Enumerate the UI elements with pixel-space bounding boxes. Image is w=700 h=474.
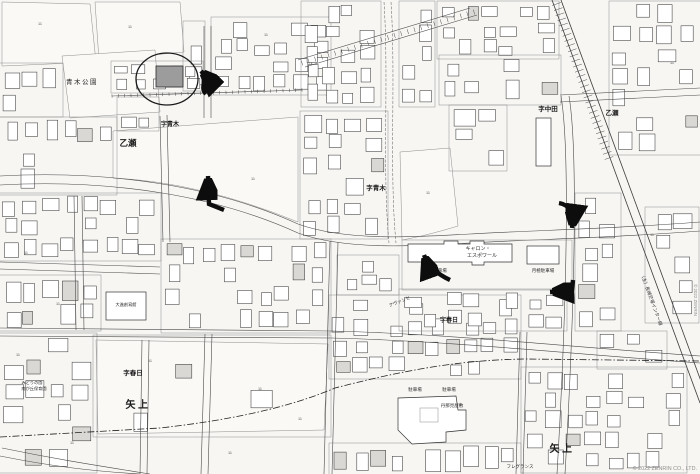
road-tick [565,39,574,42]
building [73,427,91,441]
building [51,385,63,397]
building [184,247,194,263]
building [483,323,496,334]
route-arrow-1 [201,71,206,94]
lot-number: 11 [38,22,42,26]
building [275,43,287,54]
building [657,26,672,44]
building [5,243,19,258]
building [326,26,339,36]
building [334,452,346,469]
building [360,87,374,102]
lot-number: 11 [251,177,255,181]
building [251,390,272,408]
building [305,137,317,148]
building [500,27,516,37]
building [347,280,356,290]
building [24,283,35,302]
road-edge [0,262,160,267]
building [3,407,23,423]
building [583,264,598,282]
area-label: 字青木 [366,183,386,192]
building [274,312,288,327]
building [587,396,601,407]
building [569,415,583,428]
building [586,411,598,425]
building [47,120,58,140]
building [329,6,340,23]
area-label: 矢上 [126,398,151,411]
building [679,281,692,293]
building [619,132,632,149]
building [343,93,353,103]
building [361,45,375,59]
building [612,53,625,65]
building [426,342,439,355]
building [22,201,36,214]
building-label: みどりの園 [22,379,43,386]
building [613,69,628,84]
building [189,314,200,328]
building [504,338,517,352]
building [221,245,235,261]
building [254,76,265,91]
building [61,305,76,325]
building [139,118,149,127]
building [274,75,285,87]
building [686,116,698,127]
building [426,450,441,472]
road-edge [560,88,700,95]
building-label: 丹那見屋敷 [441,402,464,409]
building [529,372,540,383]
road-tick [334,51,335,56]
building [360,30,374,43]
building [447,340,460,354]
road-tick [394,33,395,38]
building [72,385,88,400]
field-parcel [96,340,328,434]
road-tick [387,35,388,40]
building [421,10,431,23]
building [203,248,215,261]
building [445,81,455,96]
building [392,456,402,471]
building [167,244,182,255]
building [442,8,454,17]
building [346,178,363,195]
building [672,374,684,388]
stream-edge [391,2,396,243]
road-tick [575,69,584,72]
building [224,268,235,282]
road-tick [568,49,577,52]
building [304,158,317,174]
building [542,82,558,94]
building [658,215,671,230]
building [353,357,367,372]
building [463,294,479,307]
building [239,76,250,88]
building [527,434,542,448]
building [42,244,58,257]
building [658,50,676,62]
road-tick [401,31,402,36]
building [613,26,630,40]
building [363,262,374,273]
building [637,118,653,131]
building [448,292,462,304]
road-edge [332,242,338,474]
building [608,416,621,427]
building [408,342,423,354]
building [354,319,368,335]
building [673,214,692,229]
road-edge [0,269,160,274]
building [425,314,436,327]
road-tick [407,29,409,34]
area-label: 字春日 [440,316,458,324]
building [25,123,37,136]
building [460,40,471,55]
building [122,239,138,253]
area-label: 字春日 [123,368,143,377]
building [22,72,37,86]
building [341,50,355,62]
parcel-block [439,55,561,105]
building [85,218,96,229]
building [7,313,21,328]
building [114,66,127,73]
monthly-parking-building [527,246,559,264]
building [345,204,361,215]
building [3,95,15,111]
building [216,57,232,70]
road-tick [440,19,441,24]
building [191,46,201,64]
building [292,246,306,261]
building [658,5,672,23]
building [600,334,614,347]
area-label: 乙瀬 [606,108,620,117]
building [366,138,382,151]
lot-number: 11 [426,191,430,195]
building [84,286,96,299]
building [66,121,77,137]
building-label: キャロン・ [465,246,490,252]
building [83,240,98,252]
building [43,281,59,298]
route-arrow-4 [550,280,573,292]
building [341,5,352,15]
building [638,68,650,86]
map-viewport[interactable]: 青木公園字青木乙瀬字青木字中田乙瀬字春日矢上字春日矢上キャロン・エスポワール駐車… [0,0,700,474]
lot-number: 11 [264,33,268,37]
building [4,366,23,380]
building [169,265,180,282]
road-edge [516,332,520,474]
road-edge [2,448,150,474]
building [520,8,532,17]
building [122,117,137,128]
building [117,79,127,89]
building [637,4,650,17]
building [468,313,481,326]
road-tick [566,44,575,47]
building [681,26,693,42]
road-tick [328,53,329,58]
building [43,69,56,88]
building [23,154,34,166]
building [255,46,270,56]
building [640,28,653,42]
building [185,67,195,77]
road-edge [0,456,140,474]
copyright-text: © 2022 ZENRIN CO., LTD. [633,465,697,472]
building [465,81,479,92]
building [362,275,377,284]
building [371,450,386,466]
building [451,365,462,376]
building [393,341,403,354]
building [22,221,37,235]
building [5,73,20,88]
building [357,453,368,471]
edge-copyright-text: © 2022 ZENRIN [693,284,698,316]
destination-building [156,66,183,87]
building [545,411,561,428]
building-label: フレグランス [507,463,534,470]
building [139,200,154,215]
building [176,364,192,378]
building [479,109,496,121]
road-name-label: （主）長崎芒塚インター線 [639,272,665,327]
building [586,198,596,214]
building [305,26,317,43]
road-tick [447,17,448,22]
building [78,129,93,142]
building [308,84,318,100]
lot-number: 11 [650,233,654,237]
route-arrow-5 [559,203,572,228]
building [326,119,337,133]
building [403,66,415,79]
building [607,391,622,403]
building [609,374,623,389]
road-tick [580,85,589,88]
lot-number: 11 [228,451,232,455]
area-label: 字中田 [538,104,558,113]
building [23,311,33,324]
building [609,458,623,469]
building [165,289,179,304]
building [627,335,639,345]
building [646,452,659,468]
building [648,434,662,449]
building-label: 南が丘保育園 [21,385,46,392]
building [506,293,517,308]
road-tick [414,27,415,32]
building [214,76,228,86]
building [72,362,91,380]
building [68,196,78,212]
road-tick [573,64,582,67]
building-label: エスポワール [467,252,497,259]
road-tick [579,80,588,83]
road-edge [0,328,332,331]
road-edge [0,336,332,338]
building [327,90,338,103]
building [504,60,519,72]
building [538,23,554,33]
area-label: 乙瀬 [119,138,137,148]
lot-number: 11 [298,417,302,421]
building [313,290,323,306]
building [423,47,432,61]
road-tick [467,12,468,17]
building-label: 月極駐車場 [532,267,555,274]
building [564,374,577,389]
building [274,287,288,301]
building [27,360,40,374]
building [586,454,598,466]
building [600,308,615,320]
building [448,64,459,76]
area-label: 青木公園 [66,77,98,86]
building [444,28,455,38]
building [389,357,405,371]
building [380,279,391,291]
building [296,59,308,72]
lot-number: 11 [24,251,28,255]
building [529,315,544,327]
community-long-building [536,118,551,166]
building [43,199,60,211]
road-tick [572,59,581,62]
building [669,411,680,426]
building [328,216,339,233]
building [237,39,247,51]
building [328,155,340,169]
building [606,432,619,448]
building [353,300,367,310]
lot-number: 11 [258,387,262,391]
building [21,169,35,188]
building [372,159,384,172]
building [454,110,476,126]
building [391,326,402,337]
building [599,225,614,238]
building [332,318,344,333]
lot-number: 11 [56,302,60,306]
building [296,310,309,324]
building [445,451,460,472]
building [221,40,231,54]
building [482,7,498,17]
building [530,300,541,309]
building [456,129,472,139]
lot-number: 11 [16,353,20,357]
road-tick [354,45,355,50]
building [584,432,600,445]
road-tick [460,14,461,19]
building [107,238,118,252]
building [537,7,549,20]
building [303,221,315,235]
building-label: 大進創寫館 [116,301,137,308]
building [499,47,512,56]
road-tick [577,74,586,77]
building [489,151,504,165]
building [273,62,288,72]
building [7,282,21,302]
building [675,257,690,273]
building [361,68,371,82]
building [100,127,111,140]
area-label: 字青木 [161,120,180,128]
building [369,357,382,368]
building [356,342,367,353]
building [241,246,253,257]
building [367,118,382,131]
building [2,202,14,217]
lot-number: 11 [70,441,74,445]
road-tick [605,157,614,160]
building [468,7,478,21]
building [61,238,73,251]
building [548,373,563,389]
building [344,119,360,131]
building [629,397,644,408]
lot-number: 11 [148,359,152,363]
building [341,72,356,84]
building [484,40,496,52]
building [481,338,493,351]
building [586,249,598,261]
building [293,264,305,280]
building [309,201,320,214]
building [366,218,378,234]
building [100,200,116,214]
building [546,295,563,305]
building [545,393,555,407]
building [238,290,252,303]
lot-number: 11 [670,61,674,65]
road-edge [523,332,527,474]
building [8,122,17,140]
area-label: 矢上 [550,442,575,455]
building [420,91,432,102]
building [329,134,341,147]
building-label: 駐車場 [408,386,422,393]
building [485,447,498,469]
building [312,268,322,282]
parcel-block [0,333,97,473]
building [580,312,593,327]
road-tick [603,151,612,154]
building [258,246,272,260]
building [327,200,337,214]
building [402,89,414,102]
building [546,317,561,328]
building [81,304,93,318]
road-tick [570,54,579,57]
building [543,39,555,53]
building [639,134,655,151]
building [657,235,670,248]
building [259,312,273,327]
building [505,319,517,334]
